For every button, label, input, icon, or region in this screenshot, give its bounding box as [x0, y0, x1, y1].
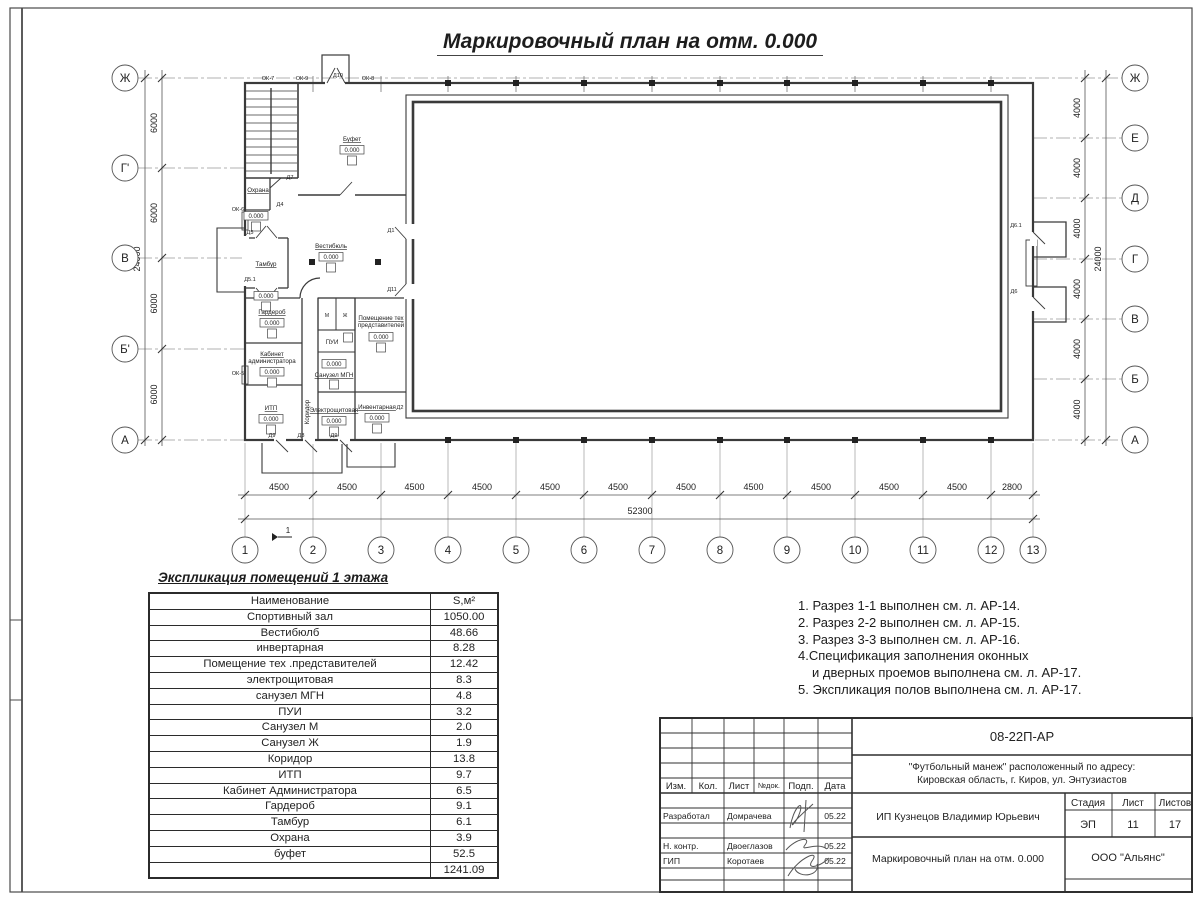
dim-label: 6000 [149, 384, 159, 404]
opening-label: ОК-6 [232, 207, 245, 213]
room-number-box [344, 333, 353, 342]
column-mark [309, 259, 315, 265]
drawing-sheet: 4500450045004500450045004500450045004500… [0, 0, 1200, 900]
room-label: Инвентарная [358, 404, 396, 411]
legend-room-name: инвертарная [149, 641, 431, 657]
legend-col-name: Наименование [149, 593, 431, 609]
stamp-listov-value: 17 [1169, 819, 1181, 831]
legend-total-value: 1241.09 [431, 862, 499, 878]
stamp-date-2: 05.22 [824, 856, 846, 866]
opening-labels: ОК-7ОК-9Д10ОК-8ОК-6ОК-5Д7Д4Д5Д5.1Д1Д11Д2… [232, 73, 1022, 439]
dim-label: 4500 [540, 482, 560, 492]
room-label: ПУИ [326, 339, 339, 346]
legend-row: санузел МГН4.8 [149, 688, 498, 704]
stamp-doc-code: 08-22П-АР [990, 729, 1054, 744]
legend-room-area: 3.9 [431, 830, 499, 846]
opening-label: Д11 [387, 287, 397, 293]
legend-room-area: 1.9 [431, 736, 499, 752]
legend-row: ПУИ3.2 [149, 704, 498, 720]
dim-label: 4000 [1072, 158, 1082, 178]
column-mark [852, 437, 858, 443]
opening-label: Д8 [298, 433, 305, 439]
legend-row: Тамбур6.1 [149, 815, 498, 831]
door-leaf [340, 182, 352, 195]
legend-room-area: 12.42 [431, 657, 499, 673]
legend-room-area: 6.5 [431, 783, 499, 799]
opening-label: ОК-9 [296, 76, 309, 82]
column-mark [717, 80, 723, 86]
column-mark [445, 80, 451, 86]
staircase [245, 83, 298, 178]
drawing-title: Маркировочный план на отм. 0.000 [395, 30, 865, 54]
stamp-sheet-title: Маркировочный план на отм. 0.000 [872, 853, 1044, 865]
stamp-role-2: ГИП [663, 856, 680, 866]
axis-bubble-label: Д [1131, 193, 1139, 205]
axis-bubble-label: 10 [849, 545, 862, 557]
stamp-date-1: 05.22 [824, 841, 846, 851]
level-mark: 0.000 [326, 419, 342, 425]
dim-label: 4500 [947, 482, 967, 492]
legend-row: Кабинет Администратора6.5 [149, 783, 498, 799]
axis-bubble-label: 12 [985, 545, 998, 557]
stamp-project-line2: Кировская область, г. Киров, ул. Энтузиа… [917, 774, 1127, 786]
room-number-box [327, 263, 336, 272]
legend-room-area: 9.1 [431, 799, 499, 815]
room-label: Буфет [343, 136, 361, 143]
legend-room-area: 48.66 [431, 625, 499, 641]
column-mark [649, 80, 655, 86]
column-mark [581, 437, 587, 443]
opening-label: Д10 [333, 73, 343, 79]
stamp-client: ИП Кузнецов Владимир Юрьевич [876, 811, 1040, 823]
axis-lines [138, 76, 1122, 537]
room-label: Электрощитовая [310, 407, 359, 414]
stamp-project-line1: "Футбольный манеж" расположенный по адре… [909, 761, 1136, 773]
stamp-role-0: Разработал [663, 811, 710, 821]
column-mark [784, 437, 790, 443]
room-number-box [268, 329, 277, 338]
legend-total-empty [149, 862, 431, 878]
axis-bubble-label: Е [1131, 133, 1139, 145]
room-label: Тамбур [256, 261, 278, 268]
dim-label-total: 52300 [627, 506, 652, 516]
dim-label: 4500 [337, 482, 357, 492]
axis-bubble-label: 5 [513, 545, 519, 557]
room-number-box [348, 156, 357, 165]
room-labels: Буфет0.000Вестибюль0.000Охрана0.000Тамбу… [244, 136, 405, 436]
legend-room-name: электрощитовая [149, 672, 431, 688]
opening-label: Д6 [1011, 289, 1018, 295]
dim-label: 4500 [404, 482, 424, 492]
legend-room-name: Спортивный зал [149, 609, 431, 625]
stamp-role-1: Н. контр. [663, 841, 698, 851]
room-label: Вестибюль [315, 243, 347, 250]
dim-label: 4500 [879, 482, 899, 492]
stamp-name-0: Домрачева [727, 811, 772, 821]
axis-bubble-label: А [121, 435, 129, 447]
stamp-list-header: Лист [1122, 798, 1144, 809]
opening-label: Д7 [287, 175, 294, 181]
legend-room-area: 52.5 [431, 846, 499, 862]
dim-label-total: 24000 [1093, 246, 1103, 271]
opening-label: Д9 [269, 433, 276, 439]
level-mark: 0.000 [263, 417, 279, 423]
axis-bubble-label: Ж [1130, 73, 1141, 85]
legend-row: Помещение тех .представителей12.42 [149, 657, 498, 673]
door-leaf [267, 226, 277, 238]
axis-bubble-label: 9 [784, 545, 790, 557]
stamp-date-0: 05.22 [824, 811, 846, 821]
dim-label: 4000 [1072, 399, 1082, 419]
stamp-col-izm: Изм. [666, 781, 686, 792]
legend-row: Гардероб9.1 [149, 799, 498, 815]
column-mark [513, 437, 519, 443]
wall-openings [242, 68, 1045, 452]
legend-room-name: Коридор [149, 751, 431, 767]
door-arc [300, 278, 320, 298]
dim-label: 4500 [608, 482, 628, 492]
legend-row: Коридор13.8 [149, 751, 498, 767]
note-line: и дверных проемов выполнена см. л. АР-17… [798, 665, 1082, 682]
sports-hall-inner-wall [413, 102, 1001, 411]
stamp-stage-header: Стадия [1071, 798, 1105, 809]
opening-label: Д2 [397, 405, 404, 411]
room-number-box [268, 378, 277, 387]
dimension-chains: 4500450045004500450045004500450045004500… [132, 70, 1110, 523]
axis-bubble-label: В [1131, 314, 1139, 326]
column-mark [852, 80, 858, 86]
legend-room-name: ИТП [149, 767, 431, 783]
axis-bubble-label: В [121, 253, 129, 265]
level-mark: 0.000 [264, 370, 280, 376]
legend-room-area: 4.8 [431, 688, 499, 704]
level-mark: 0.000 [369, 416, 385, 422]
axis-bubble-label: 8 [717, 545, 723, 557]
note-line: 2. Разрез 2-2 выполнен см. л. АР-15. [798, 615, 1082, 632]
legend-col-area: S,м² [431, 593, 499, 609]
window-symbol [1026, 240, 1037, 286]
legend-room-area: 8.3 [431, 672, 499, 688]
room-label: администратора [248, 358, 296, 365]
level-mark: 0.000 [264, 321, 280, 327]
legend-row: Спортивный зал1050.00 [149, 609, 498, 625]
legend-room-name: Санузел Ж [149, 736, 431, 752]
column-mark [920, 437, 926, 443]
axis-bubble-label: 1 [242, 545, 248, 557]
axis-bubble-label: Г [1132, 254, 1139, 266]
column-mark [920, 80, 926, 86]
column-mark [513, 80, 519, 86]
opening-label: Д9 [331, 433, 338, 439]
opening-label: Д5 [247, 230, 254, 236]
room-label: М [325, 313, 329, 319]
axis-bubble-label: 11 [917, 545, 929, 557]
legend-room-name: буфет [149, 846, 431, 862]
legend-room-name: Гардероб [149, 799, 431, 815]
dim-label: 4500 [269, 482, 289, 492]
note-line: 4.Спецификация заполнения оконных [798, 648, 1082, 665]
legend-heading: Экспликация помещений 1 этажа [158, 570, 388, 585]
level-mark: 0.000 [326, 362, 342, 368]
room-label: представителей [358, 322, 405, 329]
column-mark [375, 259, 381, 265]
axis-bubble-label: 3 [378, 545, 384, 557]
legend-room-name: Тамбур [149, 815, 431, 831]
opening-label: ОК-5 [232, 371, 245, 377]
stamp-col-list: Лист [729, 781, 750, 792]
dim-label: 4000 [1072, 339, 1082, 359]
stamp-list-value: 11 [1127, 819, 1138, 831]
column-mark [445, 437, 451, 443]
level-mark: 0.000 [323, 255, 339, 261]
dim-label: 4500 [811, 482, 831, 492]
axis-bubble-label: 4 [445, 545, 452, 557]
room-number-box [377, 343, 386, 352]
axis-bubble-label: Г' [121, 163, 129, 175]
room-number-box [330, 380, 339, 389]
entrance-porch-bottom-2 [347, 443, 395, 467]
legend-room-area: 13.8 [431, 751, 499, 767]
stamp-org: ООО "Альянс" [1091, 852, 1165, 864]
room-label: Помещение тех [358, 315, 404, 322]
opening-label: Д4 [277, 202, 284, 208]
legend-row: инвертарная8.28 [149, 641, 498, 657]
column-marks [445, 80, 994, 443]
legend-room-name: Кабинет Администратора [149, 783, 431, 799]
opening-label: ОК-8 [362, 76, 375, 82]
section-mark-label: 1 [286, 526, 291, 535]
note-line: 3. Разрез 3-3 выполнен см. л. АР-16. [798, 632, 1082, 649]
stamp-col-data: Дата [824, 781, 846, 792]
opening-label: Д6.1 [1010, 223, 1022, 229]
dim-label: 4000 [1072, 218, 1082, 238]
legend-row: Охрана3.9 [149, 830, 498, 846]
stamp-col-podp: Подп. [788, 781, 813, 792]
legend-room-name: Санузел М [149, 720, 431, 736]
room-label: Ж [343, 313, 348, 319]
axis-bubble-label: А [1131, 435, 1139, 447]
dim-label: 6000 [149, 203, 159, 223]
legend-row: Санузел М2.0 [149, 720, 498, 736]
stamp-stage-value: ЭП [1080, 819, 1096, 831]
legend-row: буфет52.5 [149, 846, 498, 862]
column-mark [988, 80, 994, 86]
note-line: 1. Разрез 1-1 выполнен см. л. АР-14. [798, 598, 1082, 615]
legend-header-row: Наименование S,м² [149, 593, 498, 609]
room-label: Гардероб [258, 309, 286, 316]
dim-label: 4500 [472, 482, 492, 492]
legend-room-name: Помещение тех .представителей [149, 657, 431, 673]
axis-bubble-label: Ж [120, 73, 131, 85]
drawing-title-text: Маркировочный план на отм. 0.000 [437, 30, 823, 56]
note-line: 5. Экспликация полов выполнена см. л. АР… [798, 682, 1082, 699]
legend-row: Вестибюлб48.66 [149, 625, 498, 641]
legend-room-name: ПУИ [149, 704, 431, 720]
room-label: Охрана [247, 187, 269, 194]
axis-bubble-label: 7 [649, 545, 655, 557]
entrance-porch-bottom-1 [262, 443, 342, 473]
legend-table: Наименование S,м² Спортивный зал1050.00В… [148, 592, 499, 879]
exit-tambour-right-2 [1033, 287, 1066, 322]
axis-bubble-label: 6 [581, 545, 587, 557]
column-mark [649, 437, 655, 443]
legend-room-area: 2.0 [431, 720, 499, 736]
legend-row: ИТП9.7 [149, 767, 498, 783]
legend-room-area: 9.7 [431, 767, 499, 783]
opening-label: Д5.1 [244, 277, 256, 283]
column-mark [988, 437, 994, 443]
entrance-porch-left [217, 228, 245, 292]
notes-list: 1. Разрез 1-1 выполнен см. л. АР-14.2. Р… [798, 598, 1082, 699]
legend-room-name: Вестибюлб [149, 625, 431, 641]
sports-hall-outer-wall [406, 95, 1008, 418]
door-leaf [270, 178, 281, 188]
room-label: ИТП [265, 405, 278, 412]
dim-label: 4500 [676, 482, 696, 492]
legend-row: Санузел Ж1.9 [149, 736, 498, 752]
dim-label: 4500 [743, 482, 763, 492]
room-label: Кабинет [260, 351, 284, 358]
legend-room-area: 1050.00 [431, 609, 499, 625]
legend-total-row: 1241.09 [149, 862, 498, 878]
dim-label: 4000 [1072, 98, 1082, 118]
dim-label: 6000 [149, 113, 159, 133]
room-label: Санузел МГН [315, 372, 354, 379]
title-block: 08-22П-АР "Футбольный манеж" расположенн… [660, 718, 1192, 892]
axis-bubble-label: 13 [1027, 545, 1040, 557]
axis-bubble-label: Б' [120, 344, 130, 356]
column-mark [717, 437, 723, 443]
exit-tambour-right-1 [1033, 222, 1066, 257]
room-number-box [373, 424, 382, 433]
legend-room-name: Охрана [149, 830, 431, 846]
section-mark: 1 [272, 526, 292, 541]
legend-row: электрощитовая8.3 [149, 672, 498, 688]
legend-room-area: 8.28 [431, 641, 499, 657]
legend-room-area: 3.2 [431, 704, 499, 720]
dim-label: 2800 [1002, 482, 1022, 492]
level-mark: 0.000 [373, 335, 389, 341]
dim-label: 4000 [1072, 279, 1082, 299]
axis-bubble-label: Б [1131, 374, 1139, 386]
legend-room-name: санузел МГН [149, 688, 431, 704]
legend-room-area: 6.1 [431, 815, 499, 831]
dim-label: 6000 [149, 293, 159, 313]
stamp-name-2: Коротаев [727, 856, 765, 866]
stamp-listov-header: Листов [1159, 798, 1192, 809]
stamp-col-kol: Кол. [699, 781, 718, 792]
column-mark [784, 80, 790, 86]
stamp-col-ndok: №док. [758, 781, 780, 790]
level-mark: 0.000 [258, 294, 274, 300]
column-mark [581, 80, 587, 86]
opening-label: Д1 [388, 228, 395, 234]
opening-label: ОК-7 [262, 76, 275, 82]
axis-bubble-label: 2 [310, 545, 316, 557]
level-mark: 0.000 [344, 148, 360, 154]
stamp-name-1: Двоеглазов [727, 841, 773, 851]
level-mark: 0.000 [248, 214, 264, 220]
